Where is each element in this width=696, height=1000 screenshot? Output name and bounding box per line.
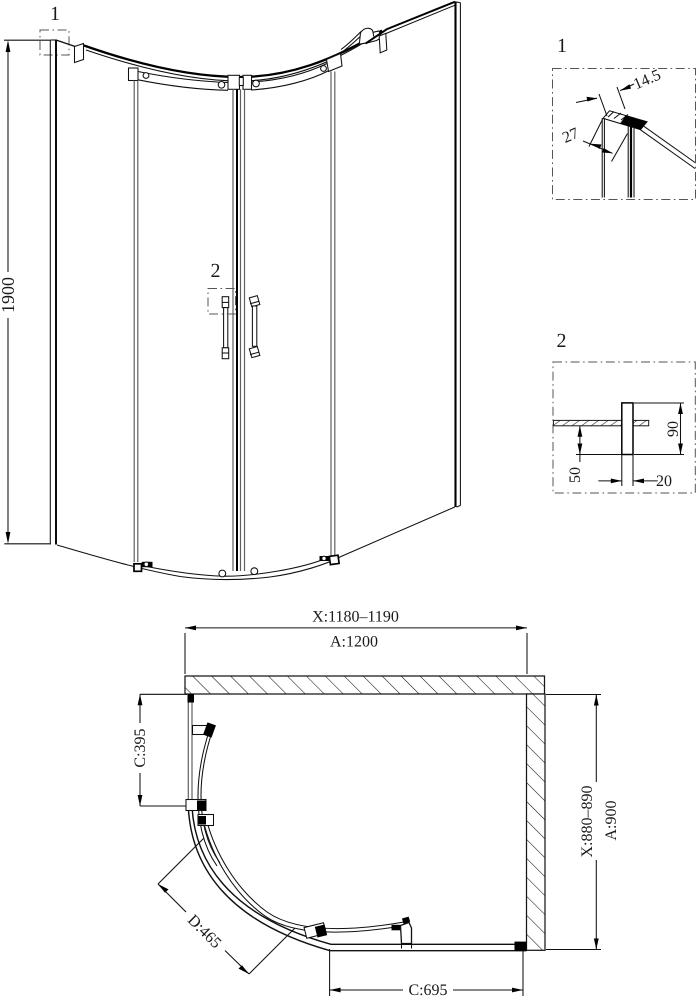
svg-text:A:1200: A:1200 xyxy=(330,633,378,650)
svg-text:2: 2 xyxy=(210,260,220,282)
svg-text:1: 1 xyxy=(50,3,60,25)
svg-text:C:695: C:695 xyxy=(408,982,447,999)
svg-text:50: 50 xyxy=(567,467,584,483)
svg-text:A:900: A:900 xyxy=(603,801,620,841)
svg-text:1: 1 xyxy=(557,35,567,57)
svg-text:90: 90 xyxy=(665,421,682,437)
svg-text:C:395: C:395 xyxy=(132,728,149,767)
svg-text:X:1180–1190: X:1180–1190 xyxy=(312,608,399,625)
svg-text:20: 20 xyxy=(656,473,672,490)
svg-text:X:880–890: X:880–890 xyxy=(579,786,596,858)
svg-text:1900: 1900 xyxy=(0,277,18,313)
svg-text:2: 2 xyxy=(556,330,566,352)
